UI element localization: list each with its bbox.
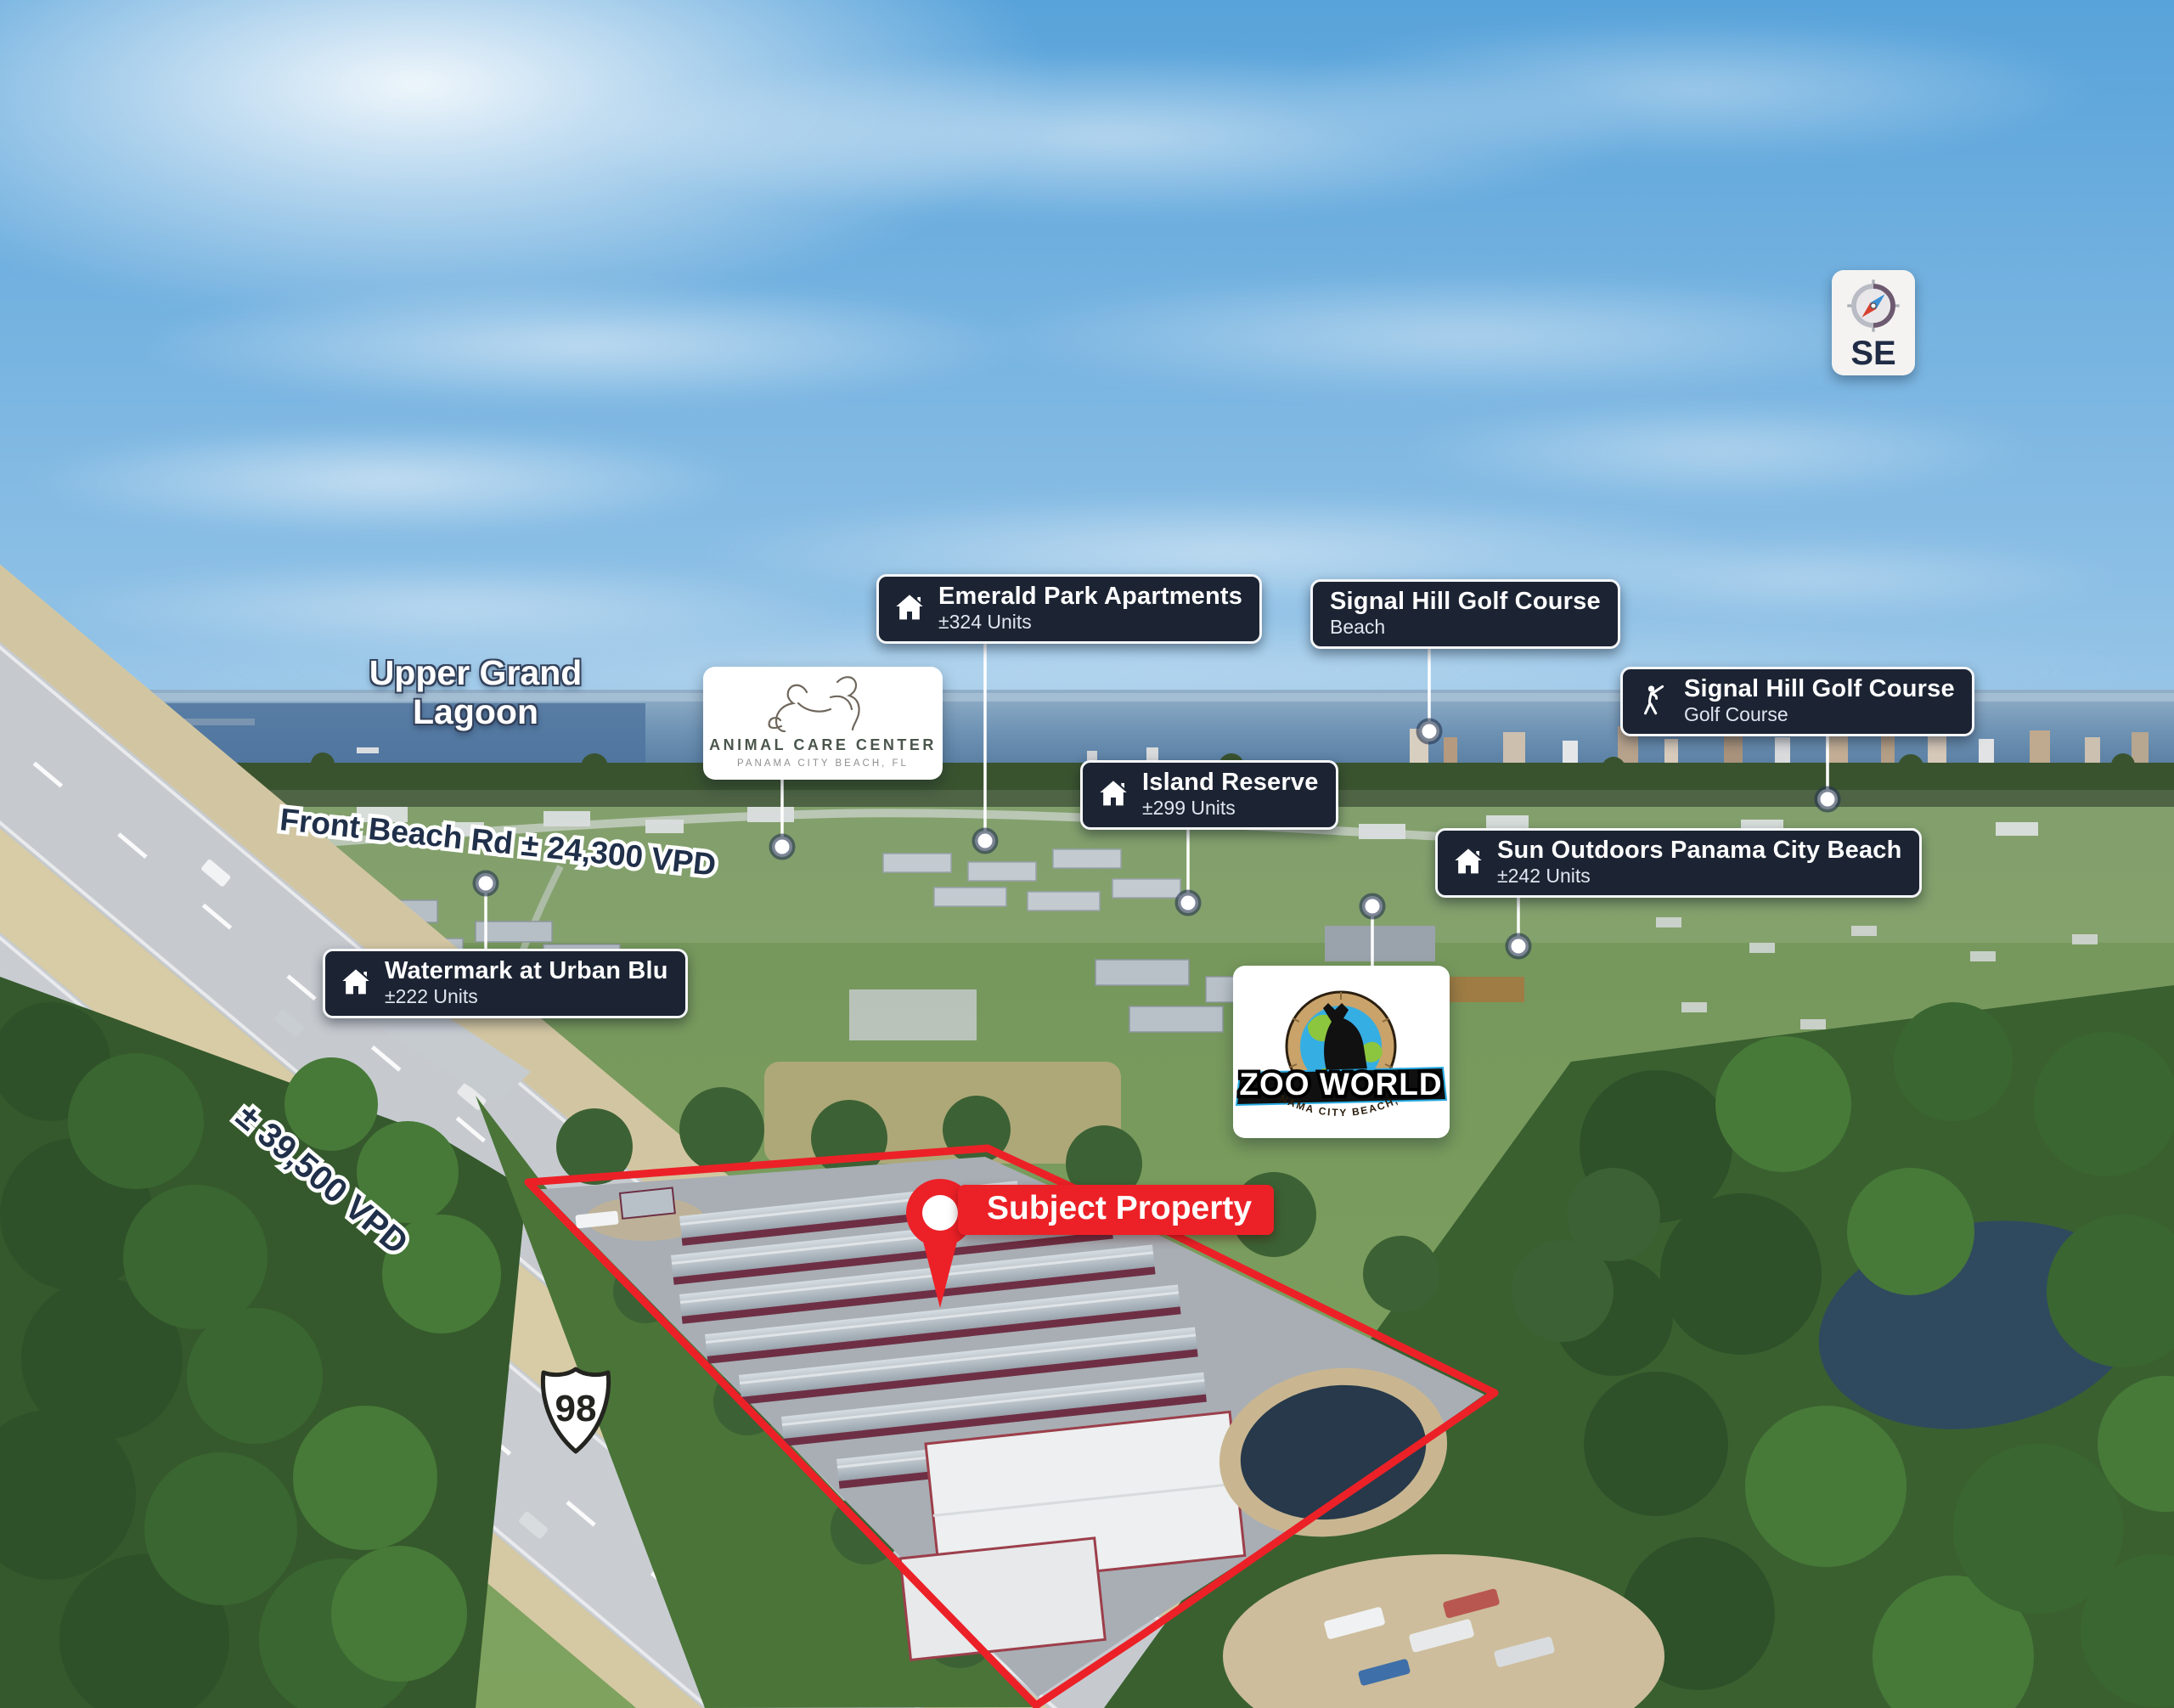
zoo-world-card: ZOO WORLD ZOO WORLD PANAMA CITY BEACH, F…	[1233, 966, 1450, 1138]
lagoon-line2: Lagoon	[413, 692, 538, 731]
compass-direction: SE	[1850, 336, 1895, 370]
poi-title: Signal Hill Golf Course	[1684, 676, 1955, 702]
lagoon-place-label: Upper Grand Lagoon	[348, 654, 603, 732]
poi-title: Watermark at Urban Blu	[385, 958, 668, 984]
pet-line-art-icon	[703, 672, 943, 733]
poi-label-signal-hill-beach: Signal Hill Golf Course Beach	[1310, 579, 1620, 649]
poi-subtitle: ±299 Units	[1142, 798, 1319, 819]
route-98-number: 98	[555, 1388, 597, 1429]
subject-property-text: Subject Property	[987, 1190, 1252, 1226]
compass-icon	[1846, 279, 1901, 333]
poi-label-watermark: Watermark at Urban Blu ±222 Units	[323, 949, 688, 1018]
poi-subtitle: ±324 Units	[938, 612, 1242, 633]
route-98-shield: 98	[538, 1365, 613, 1457]
poi-label-island-reserve: Island Reserve ±299 Units	[1080, 760, 1338, 830]
poi-title: Emerald Park Apartments	[938, 583, 1242, 610]
zoo-world-logo: ZOO WORLD ZOO WORLD PANAMA CITY BEACH, F…	[1233, 966, 1450, 1138]
poi-subtitle: Beach	[1330, 617, 1601, 638]
compass-card: SE	[1832, 270, 1915, 375]
house-icon	[1096, 777, 1130, 811]
house-icon	[1451, 845, 1485, 879]
poi-title: Island Reserve	[1142, 769, 1319, 796]
poi-label-signal-hill-golf: Signal Hill Golf Course Golf Course	[1620, 667, 1974, 736]
poi-title: Signal Hill Golf Course	[1330, 589, 1601, 615]
animal-care-center-name: ANIMAL CARE CENTER	[703, 736, 943, 754]
poi-subtitle: ±222 Units	[385, 986, 668, 1007]
subject-property-label: Subject Property	[958, 1185, 1274, 1235]
lagoon-line1: Upper Grand	[369, 653, 583, 692]
poi-subtitle: ±242 Units	[1497, 865, 1902, 887]
poi-subtitle: Golf Course	[1684, 704, 1955, 725]
house-icon	[893, 591, 926, 625]
poi-title: Sun Outdoors Panama City Beach	[1497, 837, 1902, 864]
poi-label-sun-outdoors: Sun Outdoors Panama City Beach ±242 Unit…	[1435, 828, 1922, 898]
aerial-map-scene: Upper Grand Lagoon Front Beach Rd ± 24,3…	[0, 0, 2174, 1708]
animal-care-center-card: ANIMAL CARE CENTER PANAMA CITY BEACH, FL	[703, 667, 943, 780]
zoo-world-name: ZOO WORLD	[1239, 1067, 1442, 1102]
golfer-icon	[1636, 681, 1672, 720]
house-icon	[339, 966, 373, 1000]
poi-label-emerald-park: Emerald Park Apartments ±324 Units	[876, 574, 1262, 644]
animal-care-center-location: PANAMA CITY BEACH, FL	[703, 758, 943, 769]
